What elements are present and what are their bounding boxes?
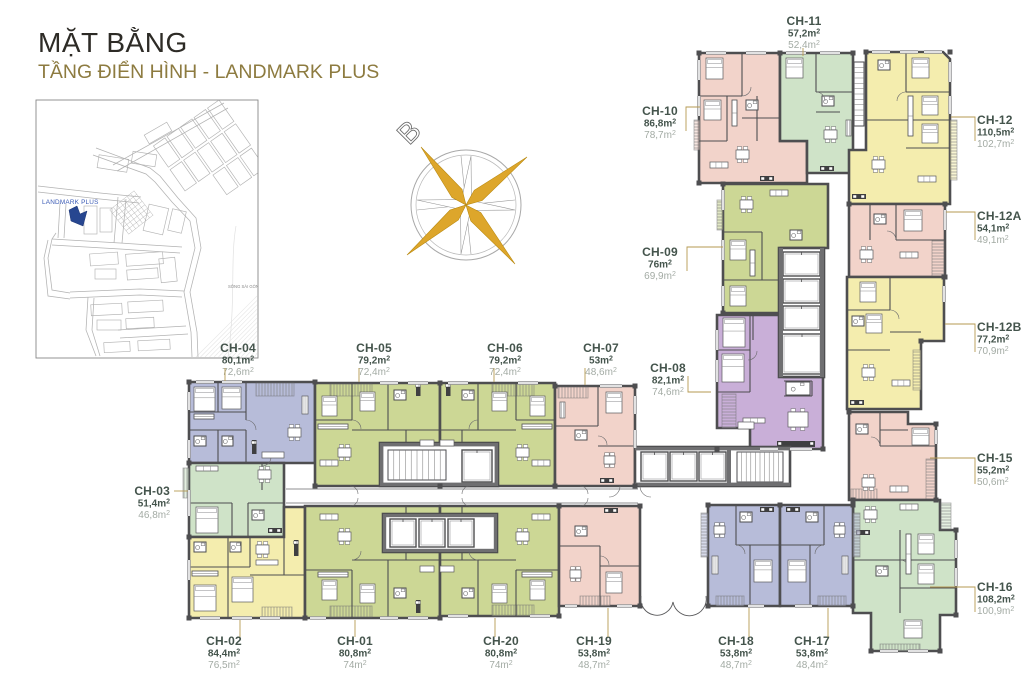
svg-text:53,8m2: 53,8m2 [578, 649, 610, 660]
svg-text:76m2: 76m2 [648, 260, 672, 271]
svg-text:54,1m2: 54,1m2 [977, 224, 1009, 235]
svg-text:80,1m2: 80,1m2 [222, 356, 254, 367]
svg-text:70,9m2: 70,9m2 [977, 346, 1009, 357]
svg-text:80,8m2: 80,8m2 [339, 649, 371, 660]
svg-text:CH-12B: CH-12B [977, 320, 1022, 334]
svg-text:80,8m2: 80,8m2 [485, 649, 517, 660]
svg-text:CH-17: CH-17 [794, 634, 830, 648]
svg-text:50,6m2: 50,6m2 [977, 477, 1009, 488]
svg-text:CH-05: CH-05 [356, 341, 392, 355]
svg-text:76,5m2: 76,5m2 [208, 660, 240, 671]
svg-text:78,7m2: 78,7m2 [644, 130, 676, 141]
svg-text:CH-03: CH-03 [134, 484, 170, 498]
svg-text:79,2m2: 79,2m2 [489, 356, 521, 367]
svg-text:B: B [391, 115, 427, 151]
svg-text:72,6m2: 72,6m2 [222, 367, 254, 378]
svg-text:108,2m2: 108,2m2 [977, 595, 1015, 606]
svg-text:CH-16: CH-16 [977, 580, 1013, 594]
svg-text:CH-20: CH-20 [483, 634, 519, 648]
svg-text:CH-08: CH-08 [650, 361, 686, 375]
svg-text:51,4m2: 51,4m2 [138, 499, 170, 510]
svg-text:74m2: 74m2 [343, 660, 366, 671]
svg-text:LANDMARK PLUS: LANDMARK PLUS [42, 199, 99, 206]
svg-text:74,6m2: 74,6m2 [652, 387, 684, 398]
svg-text:TẦNG ĐIỂN HÌNH - LANDMARK PLUS: TẦNG ĐIỂN HÌNH - LANDMARK PLUS [38, 60, 379, 83]
svg-text:48,7m2: 48,7m2 [578, 660, 610, 671]
svg-text:48,4m2: 48,4m2 [796, 660, 828, 671]
svg-text:86,8m2: 86,8m2 [644, 119, 676, 130]
svg-text:48,6m2: 48,6m2 [585, 367, 617, 378]
svg-text:CH-19: CH-19 [576, 634, 612, 648]
svg-text:CH-10: CH-10 [642, 104, 678, 118]
svg-text:CH-04: CH-04 [220, 341, 256, 355]
svg-text:CH-07: CH-07 [583, 341, 619, 355]
svg-text:53,8m2: 53,8m2 [796, 649, 828, 660]
svg-text:102,7m2: 102,7m2 [977, 139, 1014, 150]
svg-text:110,5m2: 110,5m2 [977, 128, 1014, 139]
svg-text:CH-12A: CH-12A [977, 209, 1022, 223]
svg-text:SÔNG SÀI GÒN: SÔNG SÀI GÒN [228, 284, 259, 289]
svg-text:69,9m2: 69,9m2 [644, 271, 676, 282]
svg-text:100,9m2: 100,9m2 [977, 606, 1014, 617]
svg-text:55,2m2: 55,2m2 [977, 466, 1009, 477]
svg-text:CH-09: CH-09 [642, 245, 678, 259]
svg-text:MẶT BẰNG: MẶT BẰNG [38, 27, 188, 58]
svg-text:53m2: 53m2 [589, 356, 613, 367]
svg-text:53,8m2: 53,8m2 [720, 649, 752, 660]
svg-text:CH-15: CH-15 [977, 451, 1013, 465]
svg-text:57,2m2: 57,2m2 [788, 29, 820, 40]
svg-text:CH-06: CH-06 [487, 341, 523, 355]
svg-text:CH-12: CH-12 [977, 113, 1013, 127]
svg-text:46,8m2: 46,8m2 [138, 510, 170, 521]
svg-text:77,2m2: 77,2m2 [977, 335, 1009, 346]
svg-text:74m2: 74m2 [489, 660, 512, 671]
svg-text:CH-11: CH-11 [786, 14, 821, 28]
svg-text:CH-02: CH-02 [206, 634, 242, 648]
svg-text:49,1m2: 49,1m2 [977, 235, 1009, 246]
svg-text:48,7m2: 48,7m2 [720, 660, 752, 671]
svg-text:79,2m2: 79,2m2 [358, 356, 390, 367]
svg-text:52,4m2: 52,4m2 [788, 40, 820, 51]
svg-text:84,4m2: 84,4m2 [208, 649, 240, 660]
svg-text:82,1m2: 82,1m2 [652, 376, 684, 387]
svg-text:72,4m2: 72,4m2 [358, 367, 390, 378]
